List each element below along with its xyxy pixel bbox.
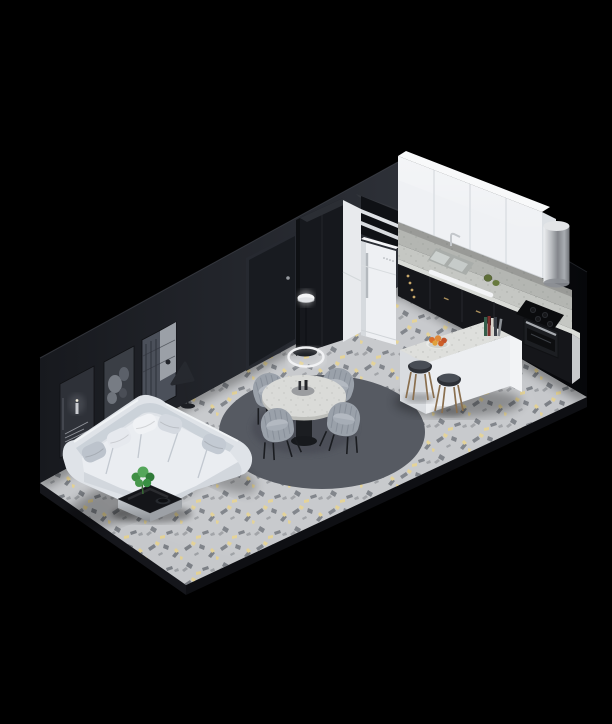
retro-fridge: [361, 237, 399, 345]
candle: [76, 403, 79, 414]
bottle: [305, 380, 308, 390]
bottle: [299, 381, 302, 390]
avocado: [492, 280, 499, 286]
figure-silhouette: [166, 360, 171, 365]
lamp-base: [181, 403, 195, 408]
extractor-hood: [544, 221, 570, 288]
island-end: [510, 335, 522, 392]
avocado: [484, 275, 492, 282]
table-tray: [292, 386, 315, 396]
tall-kitchen-unit: [296, 194, 399, 356]
cabinet-end-panel: [572, 334, 580, 384]
pantry-column: [343, 200, 361, 342]
door-handle: [286, 276, 290, 280]
isometric-room-render: [0, 0, 612, 724]
render-stage: [0, 0, 612, 724]
